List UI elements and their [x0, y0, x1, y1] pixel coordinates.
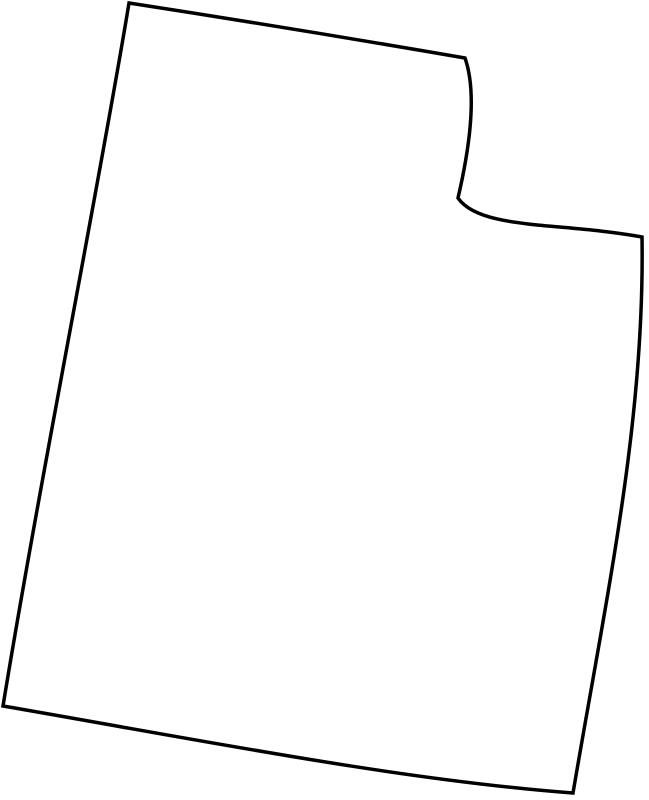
page-background: [0, 0, 649, 800]
utah-outline-map: [0, 0, 649, 800]
utah-state-border-outline: [3, 3, 642, 793]
